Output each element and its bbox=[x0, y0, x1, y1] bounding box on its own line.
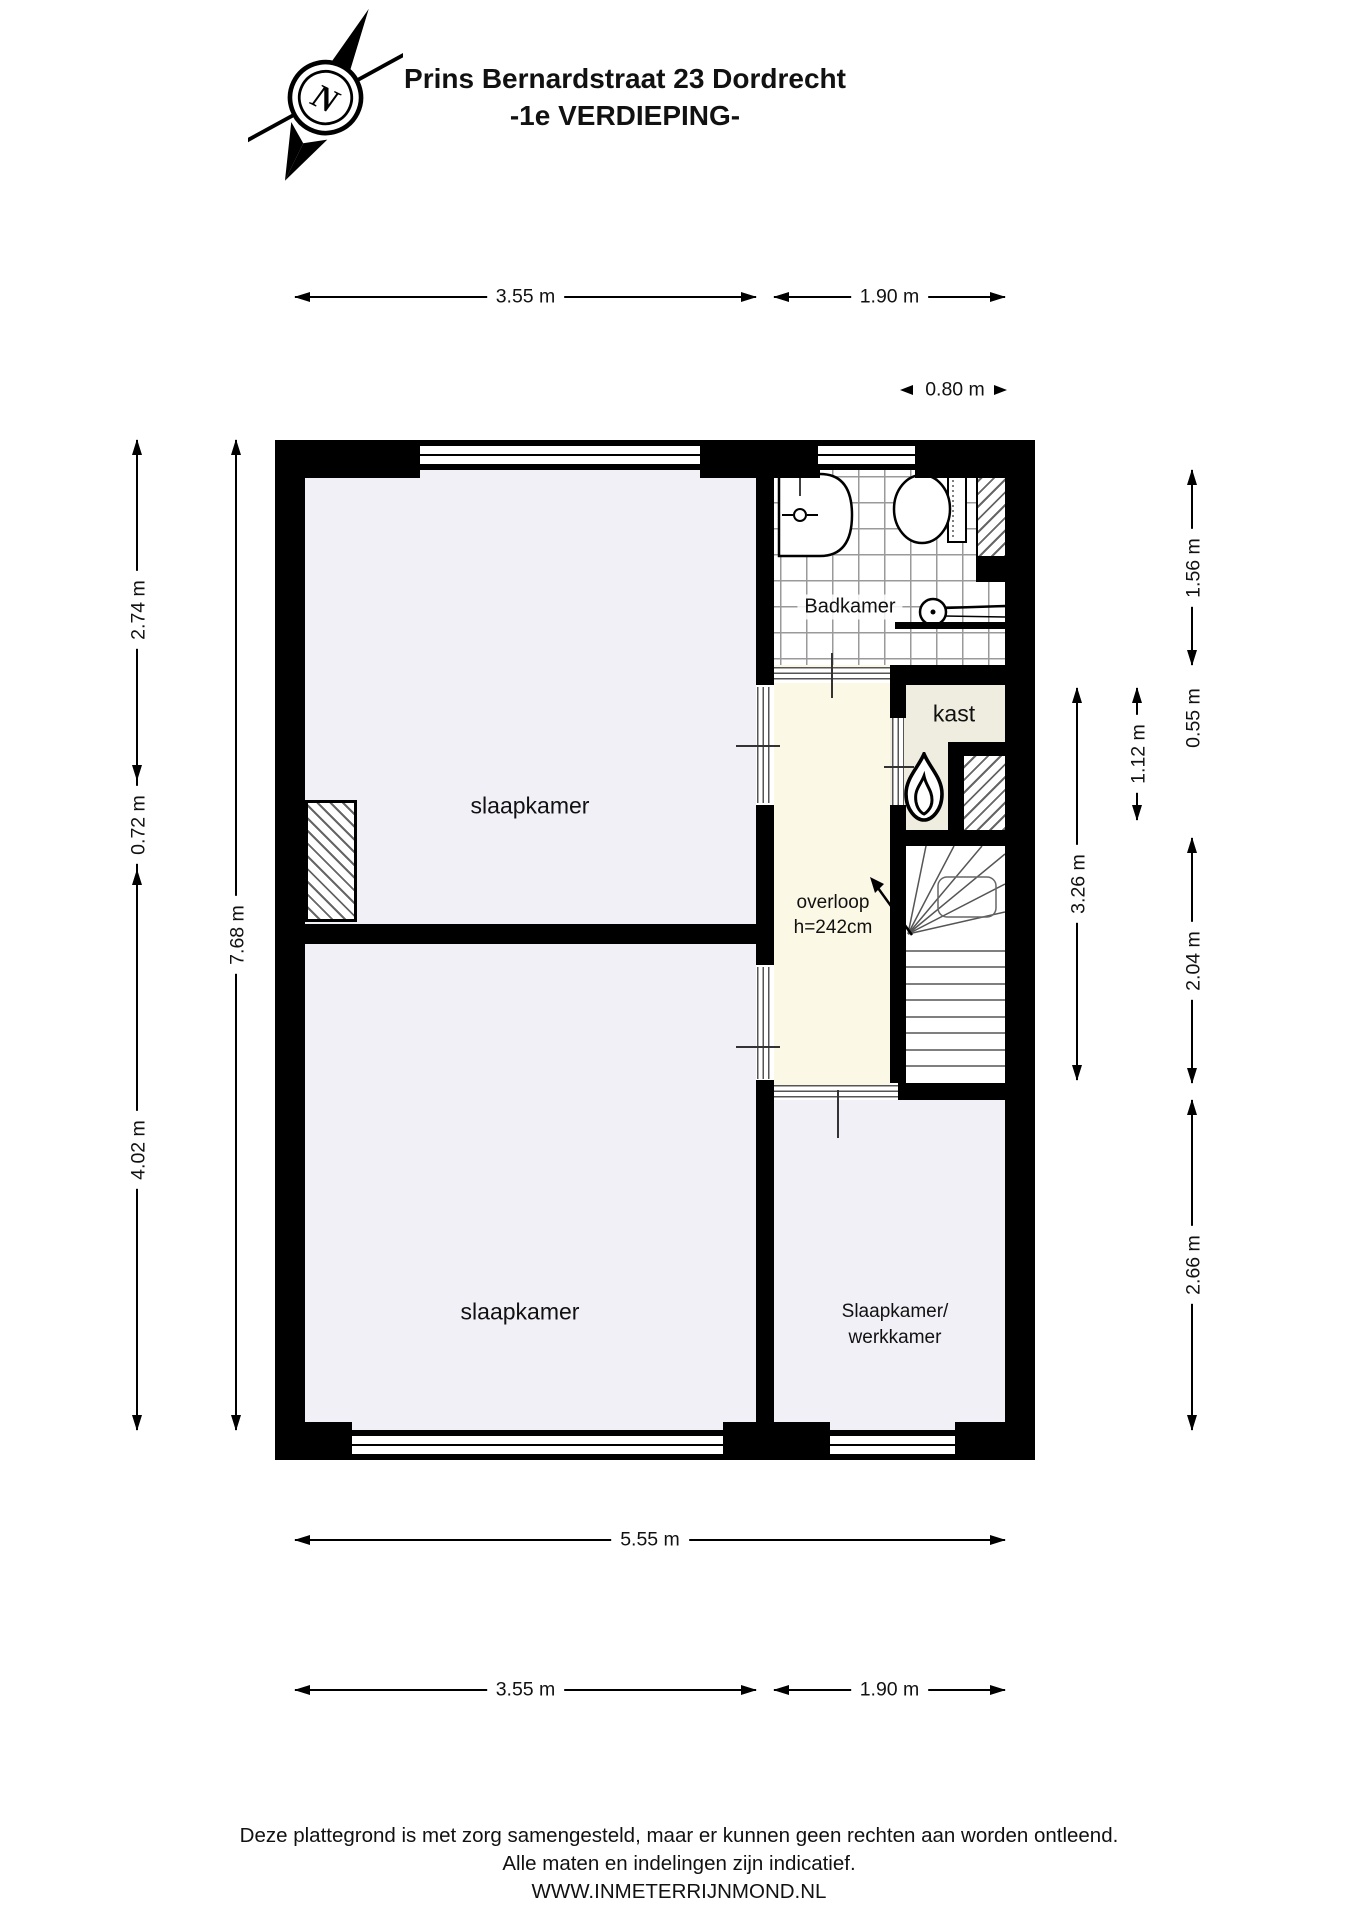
door-slaapkamer-bottom bbox=[757, 967, 773, 1079]
disclaimer-line1: Deze plattegrond is met zorg samengestel… bbox=[0, 1822, 1358, 1850]
dim-niche-arrow-right bbox=[994, 385, 1007, 395]
wall-bedroom-divider bbox=[275, 924, 774, 944]
dim-top-right-width: 1.90 m bbox=[774, 296, 1005, 298]
door-werkkamer bbox=[774, 1085, 898, 1098]
title-address: Prins Bernardstraat 23 Dordrecht bbox=[330, 60, 920, 97]
dim-bottom-right-width: 1.90 m bbox=[774, 1689, 1005, 1691]
window-bottom-right bbox=[830, 1434, 955, 1456]
page-title: Prins Bernardstraat 23 Dordrecht -1e VER… bbox=[330, 60, 920, 134]
compass-rose-icon: N bbox=[248, 2, 403, 187]
dim-right-stairs: 2.04 m bbox=[1191, 838, 1193, 1083]
wall-centre bbox=[756, 440, 774, 685]
toilet-icon bbox=[894, 475, 966, 543]
dim-badkamer-niche-width: 0.80 m bbox=[921, 379, 989, 402]
wall-pier bbox=[915, 440, 1035, 478]
wall-pier bbox=[723, 1422, 830, 1460]
wall-pier bbox=[275, 1422, 352, 1460]
wall-stairs-west bbox=[890, 846, 906, 1083]
door-tick bbox=[831, 653, 833, 698]
disclaimer-website: WWW.INMETERRIJNMOND.NL bbox=[0, 1878, 1358, 1906]
sink-icon bbox=[779, 474, 852, 556]
wall-toilet-stub bbox=[895, 622, 1005, 629]
wall-kast-west bbox=[890, 805, 906, 830]
wall-overloop-south bbox=[898, 1083, 1005, 1100]
disclaimer-line2: Alle maten en indelingen zijn indicatief… bbox=[0, 1850, 1358, 1878]
window-bottom-left bbox=[352, 1434, 723, 1456]
badkamer-fixtures bbox=[774, 470, 1005, 665]
room-slaapkamer-top bbox=[305, 470, 756, 925]
dim-right-kast-top: 0.55 m bbox=[1191, 683, 1193, 752]
label-badkamer: Badkamer bbox=[797, 595, 902, 620]
floorplan-page: { "title": { "line1": "Prins Bernardstra… bbox=[0, 0, 1358, 1920]
door-tick bbox=[837, 1090, 839, 1138]
label-kast: kast bbox=[933, 701, 975, 728]
wall-kast-south bbox=[890, 830, 1005, 846]
dim-right-badkamer: 1.56 m bbox=[1191, 470, 1193, 665]
door-tick bbox=[884, 766, 914, 768]
dim-left-bottom: 4.02 m bbox=[136, 870, 138, 1430]
door-tick bbox=[736, 745, 780, 747]
window-badkamer bbox=[818, 444, 915, 466]
label-slaapkamer-bottom: slaapkamer bbox=[461, 1299, 580, 1326]
dim-bottom-total: 5.55 m bbox=[295, 1539, 1005, 1541]
label-slaapkamer-top: slaapkamer bbox=[471, 793, 590, 820]
dim-right-overloop: 3.26 m bbox=[1076, 688, 1078, 1080]
wall-centre bbox=[756, 1080, 774, 1430]
dim-niche-arrow-left bbox=[900, 385, 913, 395]
title-floor: -1e VERDIEPING- bbox=[330, 97, 920, 134]
dim-left-total: 7.68 m bbox=[235, 440, 237, 1430]
label-werkkamer-2: werkkamer bbox=[849, 1327, 942, 1349]
wall-duct-stub bbox=[976, 556, 1005, 582]
dim-left-mid: 0.72 m bbox=[136, 780, 138, 870]
label-overloop-height: h=242cm bbox=[794, 917, 873, 939]
dim-right-room: 2.66 m bbox=[1191, 1100, 1193, 1430]
kast-duct-hatch bbox=[964, 756, 1005, 830]
dim-right-kast: 1.12 m bbox=[1136, 688, 1138, 820]
label-overloop: overloop bbox=[797, 892, 870, 914]
disclaimer: Deze plattegrond is met zorg samengestel… bbox=[0, 1822, 1358, 1906]
wall-pier bbox=[955, 1422, 1035, 1460]
wall-kast-step bbox=[948, 742, 964, 830]
door-tick bbox=[736, 1046, 780, 1048]
window-top-left bbox=[420, 444, 700, 466]
wall-pier bbox=[275, 440, 420, 478]
chimney-hatch bbox=[305, 800, 357, 922]
label-werkkamer-1: Slaapkamer/ bbox=[842, 1301, 949, 1323]
door-kast bbox=[892, 718, 904, 805]
dim-bottom-left-width: 3.55 m bbox=[295, 1689, 756, 1691]
wall-kast-west bbox=[890, 685, 906, 718]
room-slaapkamer-bottom bbox=[305, 944, 756, 1430]
wall-badkamer-south bbox=[890, 665, 1005, 685]
dim-left-top: 2.74 m bbox=[136, 440, 138, 780]
room-werkkamer bbox=[774, 1100, 1005, 1430]
dim-top-left-width: 3.55 m bbox=[295, 296, 756, 298]
wall-right bbox=[1005, 440, 1035, 1460]
wall-left bbox=[275, 440, 305, 1460]
